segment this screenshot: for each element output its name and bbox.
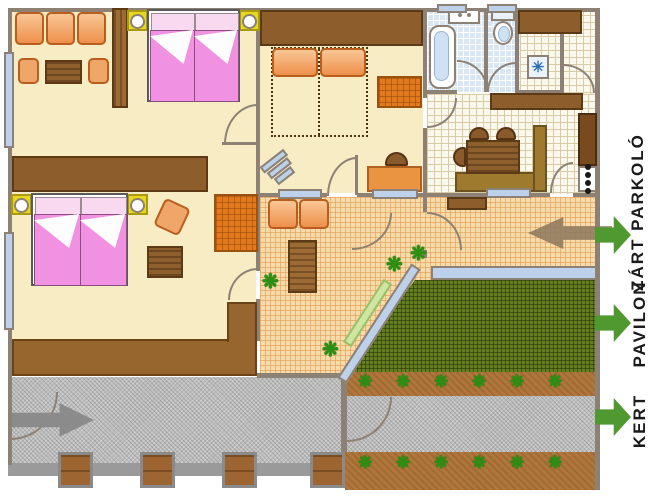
flower-bed-plant-icon: ❋ xyxy=(472,373,486,390)
terrace-plant-icon: ❋ xyxy=(410,244,427,264)
washing-machine: ✳ xyxy=(527,55,549,79)
wardrobe-middle-room xyxy=(260,10,423,46)
kitchen-counter-top xyxy=(490,93,583,110)
closed-parking-label: ZÁRT PARKOLÓ xyxy=(628,133,648,291)
rug-bedroom2 xyxy=(214,194,258,252)
parking-arrow-icon xyxy=(595,216,631,254)
terrace-table xyxy=(288,240,317,293)
living-sofa-seat xyxy=(15,12,44,45)
dining-chair xyxy=(469,127,489,140)
flower-bed-plant-icon: ❋ xyxy=(396,373,410,390)
sofa-bed-cushion xyxy=(272,48,318,77)
bedside-lamp xyxy=(127,194,148,215)
flower-bed-plant-icon: ❋ xyxy=(510,373,524,390)
bedroom2-desk xyxy=(147,246,183,278)
porch-wall-vertical xyxy=(227,302,257,342)
terrace-sofa-cushion xyxy=(268,199,298,229)
terrace-plant-icon: ❋ xyxy=(262,272,279,292)
living-sofa-seat xyxy=(77,12,106,45)
stove-burner xyxy=(585,172,591,178)
toilet-bowl xyxy=(493,21,513,45)
wall-terrace-bottom xyxy=(257,373,345,378)
pavilion-arrow-icon xyxy=(595,304,631,342)
porch-pillar xyxy=(140,452,175,488)
flower-bed-plant-icon: ❋ xyxy=(358,454,372,471)
bedside-lamp xyxy=(127,10,148,31)
stove-burner xyxy=(585,164,591,170)
garden-label: KERT xyxy=(630,394,650,448)
living-sofa-seat xyxy=(46,12,75,45)
tall-cabinet xyxy=(578,113,597,166)
window-left-wall-lower xyxy=(4,232,14,330)
garden-arrow-icon xyxy=(595,398,631,436)
rug-middle-room xyxy=(377,76,422,108)
living-armchair-right xyxy=(88,58,109,84)
wall-bath-south-a xyxy=(423,90,457,94)
wall-bath-west-lower xyxy=(423,128,427,197)
terrace-lower-floor xyxy=(260,280,345,377)
flower-bed-plant-icon: ❋ xyxy=(548,373,562,390)
wall-terrace-partition-a xyxy=(423,197,427,212)
stove xyxy=(578,166,597,192)
window-top-bath xyxy=(437,4,467,13)
flower-bed-plant-icon: ❋ xyxy=(434,373,448,390)
terrace-plant-icon: ❋ xyxy=(322,340,339,360)
wardrobe-hall xyxy=(12,156,208,192)
window-middle-room-a xyxy=(278,189,322,199)
wood-partition xyxy=(112,8,128,108)
window-left-wall-upper xyxy=(4,52,14,148)
window-top-wc xyxy=(487,4,517,13)
stove-burner xyxy=(585,180,591,186)
terrace-step xyxy=(447,197,487,210)
flower-bed-plant-icon: ❋ xyxy=(396,454,410,471)
washing-machine-asterisk-icon: ✳ xyxy=(532,59,545,76)
wall-bath-west-upper xyxy=(423,8,427,98)
sofa-bed-cushion xyxy=(320,48,366,77)
terrace-sofa-cushion xyxy=(299,199,329,229)
porch-wall-horizontal xyxy=(12,339,257,376)
flower-bed-plant-icon: ❋ xyxy=(548,454,562,471)
pavilion-label: PAVILON xyxy=(630,280,650,367)
window-kitchen xyxy=(486,188,531,198)
dining-chair xyxy=(453,147,466,167)
terrace-lawn-window xyxy=(431,266,597,280)
double-bed-bottom xyxy=(31,193,128,286)
porch-pillar xyxy=(310,452,345,488)
dining-table xyxy=(466,140,520,174)
bedside-lamp xyxy=(239,10,260,31)
bedside-lamp xyxy=(11,194,32,215)
flower-bed-plant-icon: ❋ xyxy=(358,373,372,390)
bathtub xyxy=(429,25,456,89)
flower-bed-plant-icon: ❋ xyxy=(510,454,524,471)
kitchen-counter-l-vertical xyxy=(533,125,547,192)
stove-burner xyxy=(585,188,591,194)
coffee-table xyxy=(45,60,82,84)
dining-chair xyxy=(496,127,516,140)
porch-pillar xyxy=(58,452,93,488)
flower-bed-plant-icon: ❋ xyxy=(434,454,448,471)
double-bed-top xyxy=(147,9,240,102)
porch-pillar xyxy=(222,452,257,488)
floor-plan: ✳ ZÁRT PARKOLÓ PAVILON KERT ❋❋❋❋❋❋❋❋❋❋❋❋… xyxy=(0,0,653,500)
living-armchair-left xyxy=(18,58,39,84)
terrace-plant-icon: ❋ xyxy=(386,255,403,275)
entry-bench xyxy=(518,10,582,34)
window-middle-room-b xyxy=(372,189,418,199)
flower-bed-plant-icon: ❋ xyxy=(472,454,486,471)
